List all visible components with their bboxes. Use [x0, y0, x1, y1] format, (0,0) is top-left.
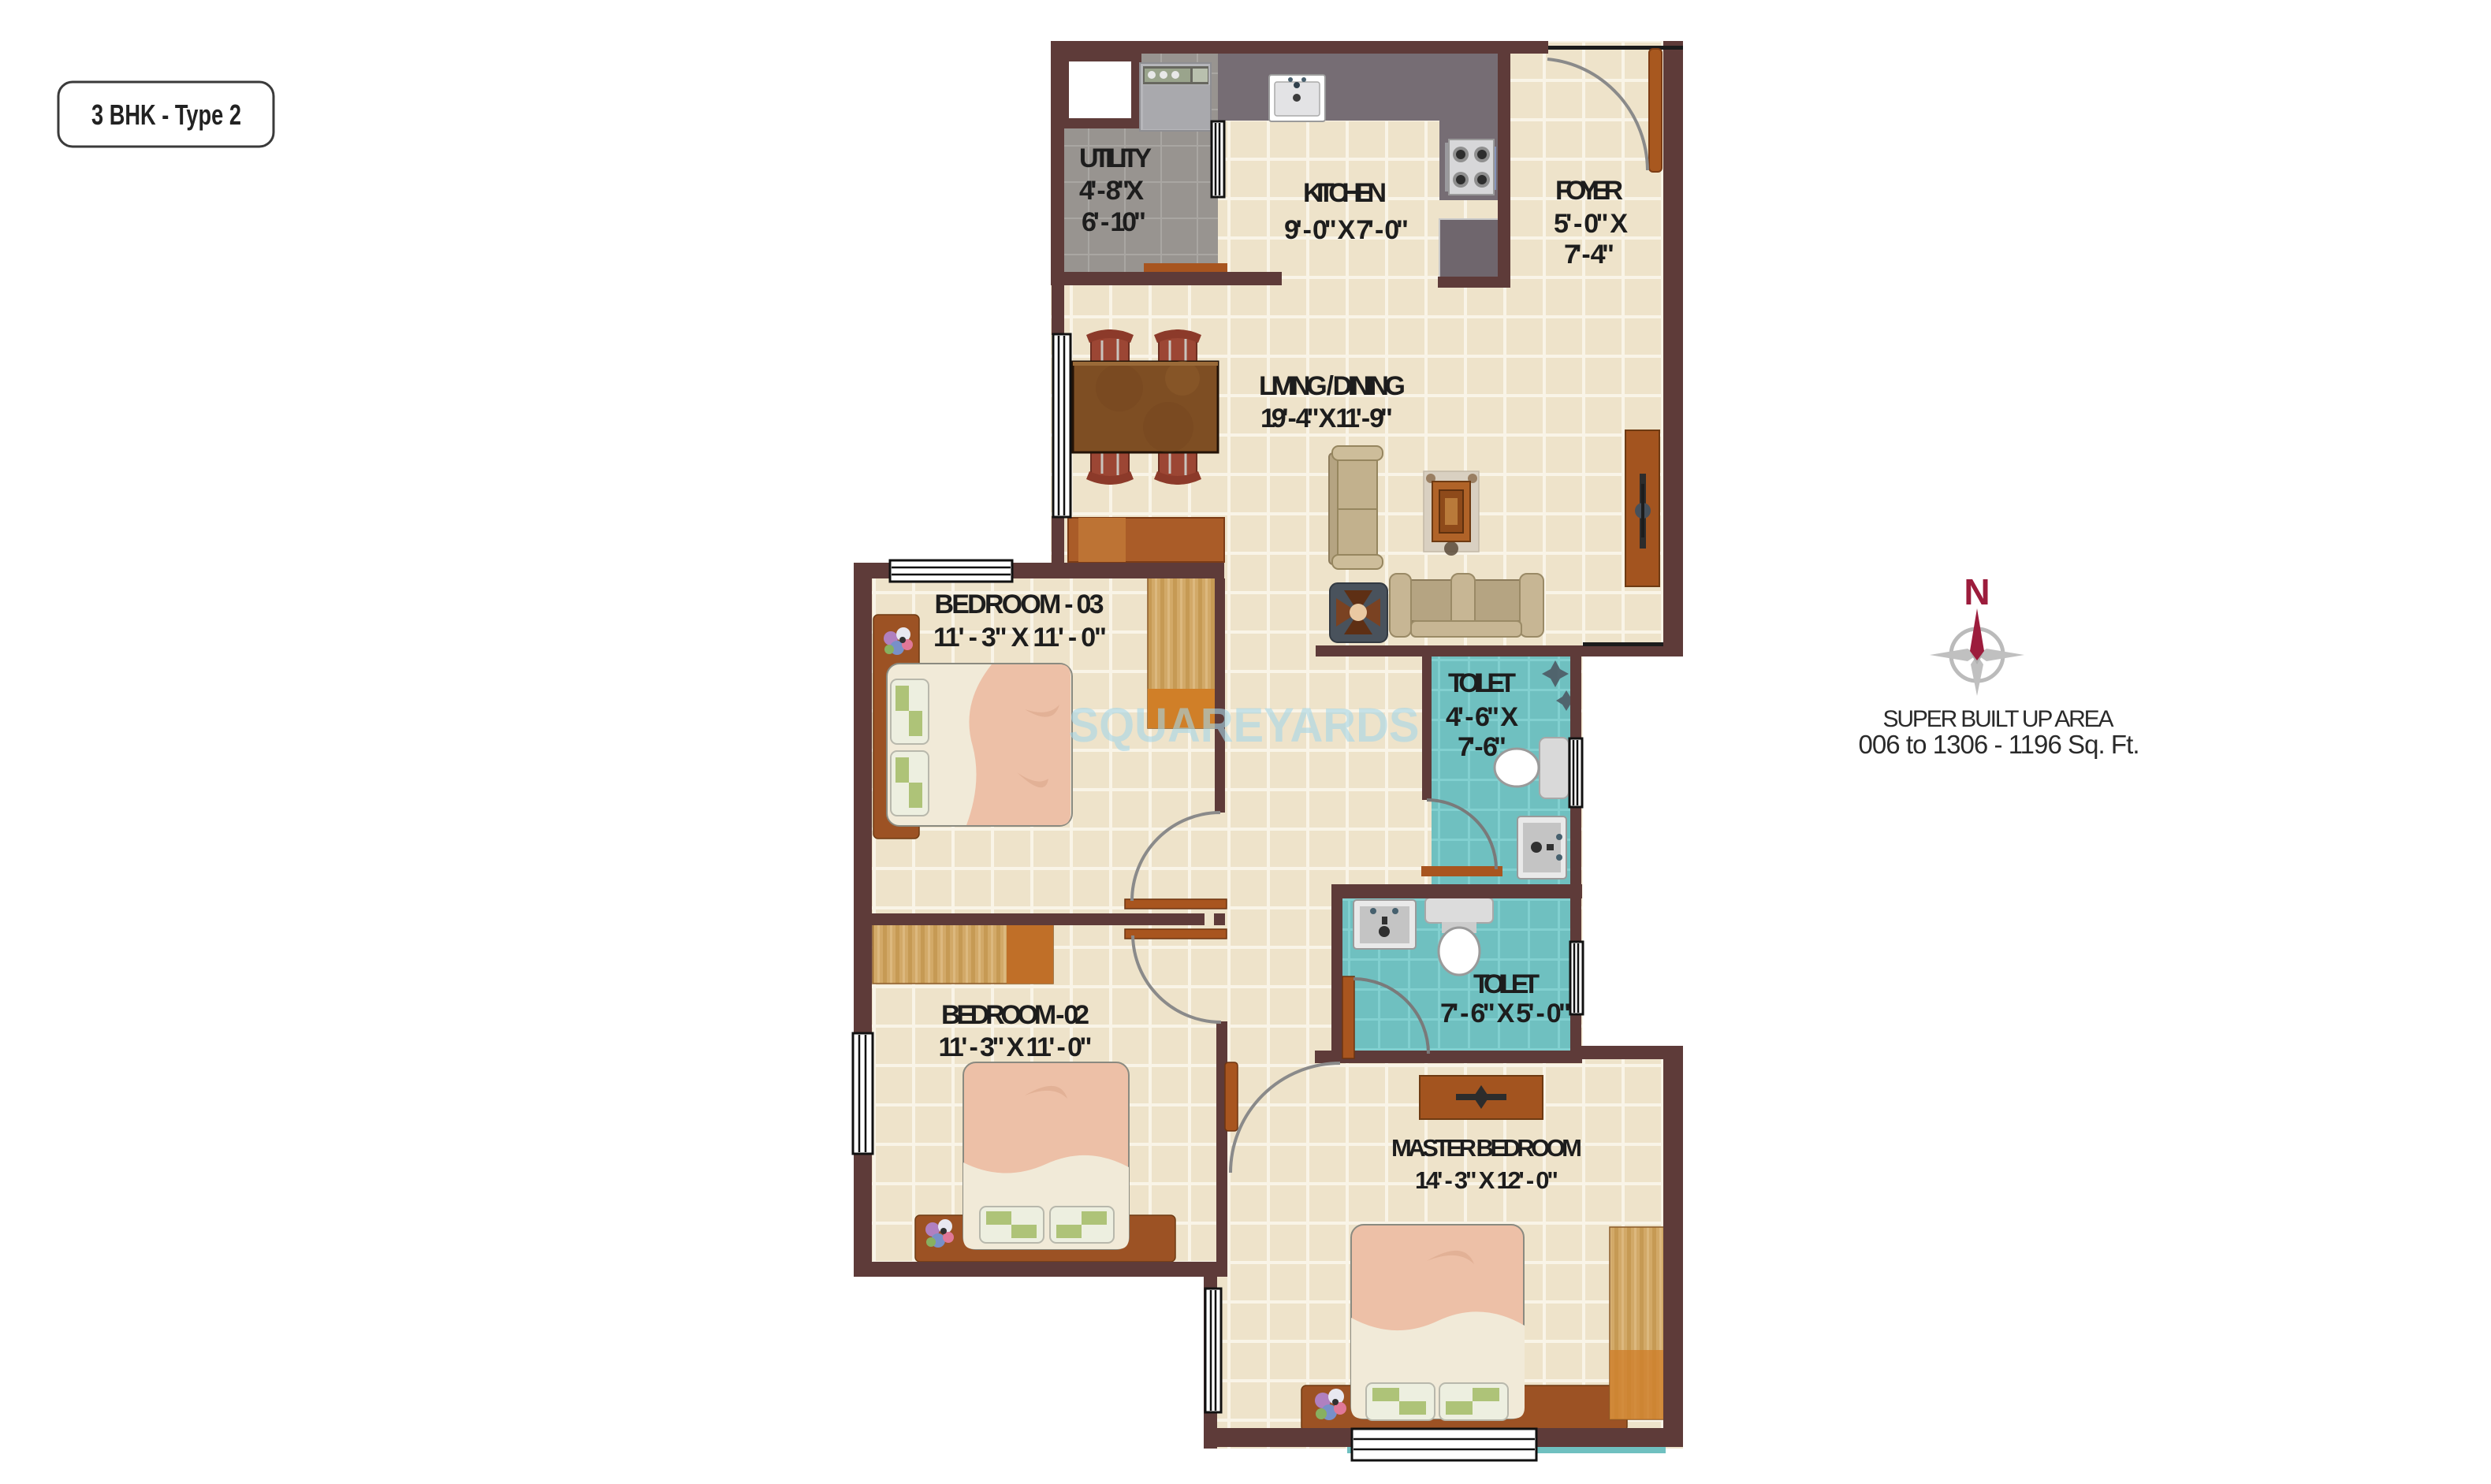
svg-text:4' - 6" X: 4' - 6" X [1446, 702, 1518, 732]
svg-text:006 to 1306 - 1196 Sq. Ft.: 006 to 1306 - 1196 Sq. Ft. [1859, 730, 2140, 759]
svg-text:14' - 3" X 12' - 0": 14' - 3" X 12' - 0" [1415, 1166, 1558, 1194]
svg-text:LIVING / DINING: LIVING / DINING [1259, 371, 1406, 401]
svg-text:19' - 4" X 11' - 9": 19' - 4" X 11' - 9" [1260, 404, 1393, 433]
svg-text:7' - 6": 7' - 6" [1458, 732, 1506, 762]
svg-text:11' - 3" X 11' - 0": 11' - 3" X 11' - 0" [939, 1032, 1093, 1062]
svg-text:4' - 8"X: 4' - 8"X [1079, 176, 1144, 206]
svg-text:BEDROOM - 03: BEDROOM - 03 [935, 590, 1104, 619]
svg-text:9' - 0" X 7' - 0": 9' - 0" X 7' - 0" [1284, 215, 1409, 245]
svg-text:BEDROOM - 02: BEDROOM - 02 [941, 1000, 1089, 1030]
svg-text:KITCHEN: KITCHEN [1303, 178, 1387, 208]
svg-text:7' - 4": 7' - 4" [1564, 240, 1614, 270]
svg-text:3 BHK - Type 2: 3 BHK - Type 2 [91, 99, 241, 131]
svg-text:UTILITY: UTILITY [1079, 143, 1152, 173]
svg-text:7' - 6" X 5' - 0": 7' - 6" X 5' - 0" [1440, 999, 1571, 1028]
svg-text:N: N [1964, 571, 1990, 612]
svg-text:FOYER: FOYER [1555, 176, 1623, 206]
svg-text:SUPER BUILT UP AREA: SUPER BUILT UP AREA [1883, 706, 2114, 732]
svg-text:TOILET: TOILET [1448, 668, 1516, 698]
svg-text:MASTER BEDROOM: MASTER BEDROOM [1391, 1134, 1582, 1162]
svg-text:11' - 3" X 11' - 0": 11' - 3" X 11' - 0" [933, 623, 1107, 653]
svg-text:5' - 0" X: 5' - 0" X [1554, 209, 1628, 239]
svg-text:TOILET: TOILET [1473, 969, 1540, 999]
svg-text:6' - 10": 6' - 10" [1082, 207, 1146, 237]
svg-text:SQUAREYARDS: SQUAREYARDS [1069, 698, 1420, 752]
